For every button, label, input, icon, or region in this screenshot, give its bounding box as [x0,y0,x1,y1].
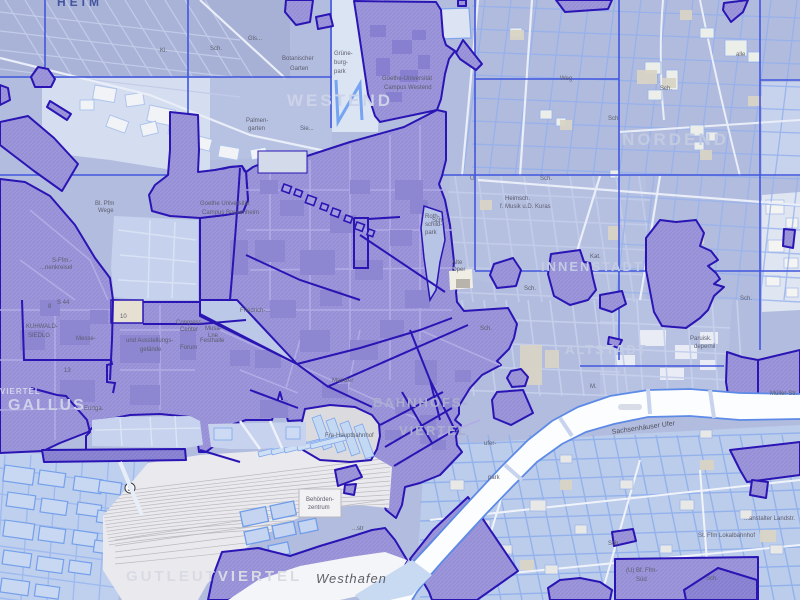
svg-text:zentrum: zentrum [308,505,330,511]
svg-text:BAHNHOFS-: BAHNHOFS- [373,395,469,410]
svg-text:WESTEND: WESTEND [287,91,393,110]
svg-text:Sch.: Sch. [480,326,492,332]
svg-text:Sch.: Sch. [660,86,672,92]
svg-text:HEIM: HEIM [57,0,103,9]
svg-text:NORDEND: NORDEND [622,130,729,149]
svg-text:St. Ffm Lokalbahnhof: St. Ffm Lokalbahnhof [698,533,755,539]
svg-text:Fra-Hauptbahnhof: Fra-Hauptbahnhof [325,433,374,439]
svg-text:GUTLEUTVIERTEL: GUTLEUTVIERTEL [126,568,302,585]
svg-text:KUHWALD-: KUHWALD- [26,324,58,330]
svg-text:Bl. Pfm: Bl. Pfm [95,201,114,207]
svg-text:Müller-Str.: Müller-Str. [770,391,798,397]
svg-text:Goethe-Universität: Goethe-Universität [382,76,432,82]
svg-text:Mainzer: Mainzer [332,378,353,384]
svg-text:...str: ...str [352,526,364,532]
svg-text:Alte: Alte [452,260,463,266]
svg-text:Sch.: Sch. [706,576,718,582]
svg-text:Sch.: Sch. [540,176,552,182]
svg-text:Sch.: Sch. [740,296,752,302]
svg-text:Campus Westend: Campus Westend [384,85,432,91]
svg-text:10: 10 [120,314,127,320]
svg-text:13: 13 [64,368,71,374]
svg-text:garten: garten [248,126,265,132]
svg-text:Sch.: Sch. [432,218,444,224]
svg-text:park: park [334,69,347,75]
svg-text:Sch.: Sch. [210,46,222,52]
svg-text:Friedrich-...: Friedrich-... [240,308,271,314]
svg-text:Wege: Wege [98,208,114,214]
svg-text:SIEDLG: SIEDLG [28,333,50,339]
svg-text:S-Ffm.-: S-Ffm.- [52,258,72,264]
svg-text:VIERTEL: VIERTEL [399,423,468,438]
svg-text:VIERTEL: VIERTEL [0,387,41,396]
svg-text:park: park [488,475,501,481]
svg-text:Garten: Garten [290,66,308,72]
svg-text:M.: M. [590,384,597,390]
svg-text:Eurtga.: Eurtga. [84,406,104,412]
svg-text:Weg: Weg [560,76,572,82]
svg-text:alle: alle [736,52,746,58]
svg-text:Messe-: Messe- [76,336,96,342]
svg-text:Goethe Universität: Goethe Universität [200,201,250,207]
svg-text:ALTSTADT: ALTSTADT [565,342,648,357]
svg-text:Paruisk.: Paruisk. [690,336,712,342]
svg-text:(U) Bf. Ffm-: (U) Bf. Ffm- [626,568,657,574]
svg-text:S 44: S 44 [57,300,70,306]
svg-text:Gls...: Gls... [248,36,262,42]
svg-text:Festhalle: Festhalle [200,338,225,344]
svg-text:Heimsch.: Heimsch. [505,196,530,202]
svg-text:depernil: depernil [694,344,715,350]
svg-text:Botanischer: Botanischer [282,56,314,62]
svg-text:Oper: Oper [452,267,465,273]
svg-text:Palmen-: Palmen- [246,118,268,124]
svg-text:...nenkreisel: ...nenkreisel [40,265,72,271]
svg-text:Musa-: Musa- [205,326,222,332]
svg-text:Kl.: Kl. [160,48,167,54]
svg-text:Süd: Süd [636,577,647,583]
svg-text:Westhafen: Westhafen [316,571,387,586]
svg-text:Center: Center [180,327,198,333]
svg-text:GALLUS: GALLUS [8,397,86,414]
svg-text:Kat.: Kat. [590,254,601,260]
svg-text:burg-: burg- [334,60,348,66]
svg-text:Sch.: Sch. [524,286,536,292]
svg-text:Congress: Congress [176,320,202,326]
svg-text:...anstalter Landstr.: ...anstalter Landstr. [744,516,795,522]
svg-text:ufer-: ufer- [484,441,496,447]
svg-text:Sch.: Sch. [608,541,620,547]
svg-text:und Ausstellungs-: und Ausstellungs- [126,338,173,344]
svg-text:park: park [425,230,438,236]
svg-text:Grüne-: Grüne- [334,51,353,57]
svg-text:Campus Bockenheim: Campus Bockenheim [202,210,259,216]
svg-text:gelände: gelände [140,347,162,353]
svg-text:INNENSTADT: INNENSTADT [541,259,644,274]
svg-text:f. Musik u.D. Kuras: f. Musik u.D. Kuras [500,204,551,210]
svg-text:U: U [470,176,474,182]
svg-text:Sch.: Sch. [608,116,620,122]
svg-text:Behörden-: Behörden- [306,497,334,503]
svg-text:Forum: Forum [180,345,197,351]
svg-text:Sie...: Sie... [300,126,314,132]
